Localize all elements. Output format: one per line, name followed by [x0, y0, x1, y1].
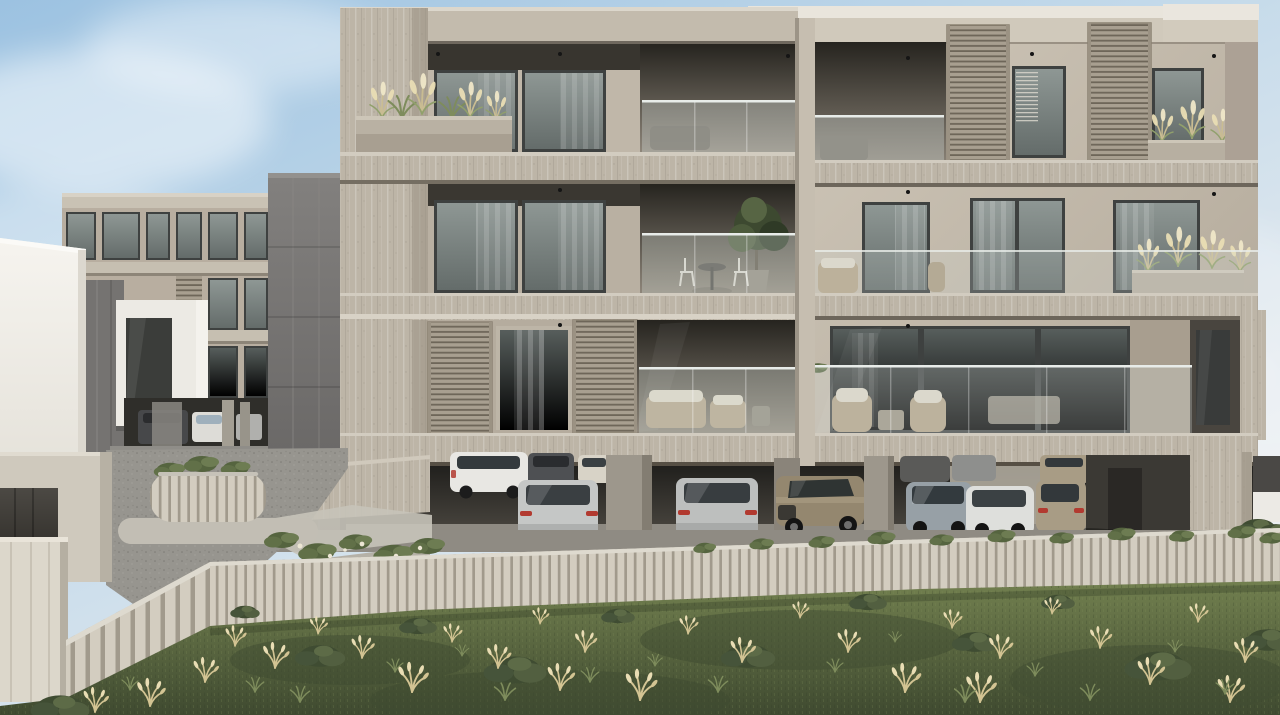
- hanging-screen: [152, 402, 182, 446]
- carport: [124, 398, 270, 450]
- car-silver-estate: [676, 478, 758, 533]
- slab-band: [812, 293, 1258, 320]
- left-wing-floor2: [428, 184, 798, 295]
- glass-balustrade: [812, 365, 1192, 433]
- sheer-curtain: [476, 203, 515, 290]
- car-tan-estate: [1036, 480, 1086, 532]
- louver-shutter: [947, 25, 1009, 168]
- right-wing-floor1: [807, 310, 1266, 440]
- background-building-windows-low: [208, 346, 268, 398]
- louver-shutter: [428, 322, 492, 434]
- sheer-curtain: [558, 203, 603, 290]
- corner-return: [1225, 42, 1258, 168]
- slab-band: [340, 152, 798, 184]
- glass-balustrade: [642, 100, 796, 152]
- background-building-windows-mid: [208, 278, 268, 330]
- left-wing-floor1: [428, 320, 798, 434]
- window-blinds: [1016, 70, 1038, 122]
- slab-band: [812, 160, 1258, 186]
- car-dark-sedan: [900, 456, 950, 482]
- louver-shutter: [573, 320, 637, 433]
- car-silver-estate: [518, 480, 598, 534]
- glass-balustrade: [639, 367, 798, 433]
- render-canvas: [0, 0, 1280, 715]
- sheer-curtain: [514, 330, 544, 430]
- glass-balustrade: [812, 250, 1258, 298]
- car-white-crossover: [966, 486, 1034, 537]
- main-building-right-wing: [748, 4, 1266, 468]
- car-gray-sedan: [952, 455, 996, 481]
- architectural-render-image: [0, 0, 1280, 715]
- white-building: [0, 238, 86, 470]
- car-blue-sedan: [906, 482, 972, 535]
- right-wing-floor2: [812, 198, 1258, 298]
- glass-balustrade: [642, 233, 796, 293]
- sheer-curtain: [560, 73, 603, 149]
- garage-door: [1108, 468, 1142, 530]
- corner-frame-pier: [1240, 310, 1266, 440]
- louver-shutter: [1088, 23, 1151, 168]
